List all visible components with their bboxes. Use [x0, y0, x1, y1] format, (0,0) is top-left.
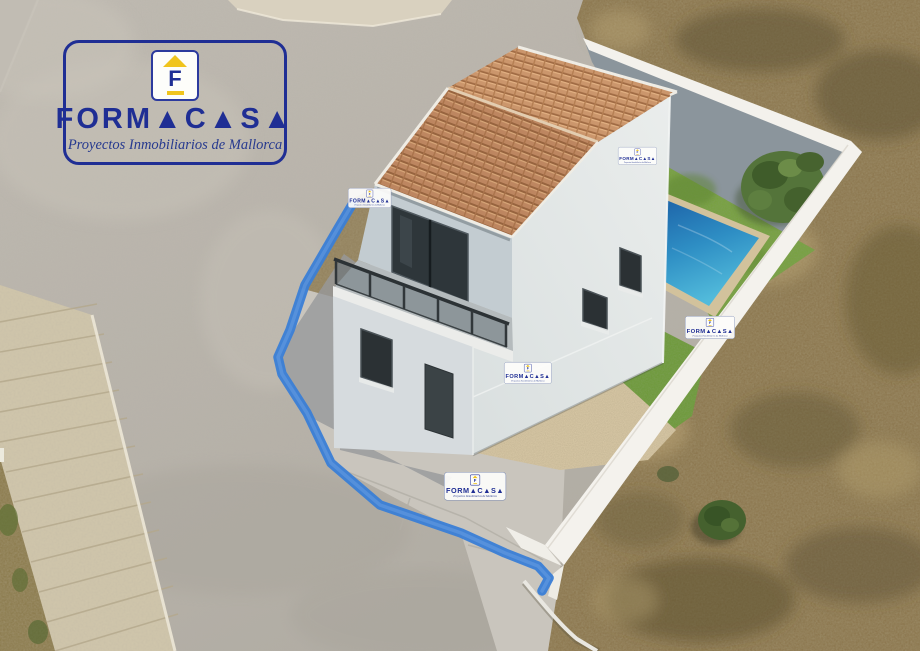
formacasa-house-icon: F [470, 475, 480, 486]
formacasa-watermark: F FORM▲C▲S▲ Proyectos Inmobiliarios de M… [504, 362, 552, 384]
scrub-patch [657, 466, 679, 482]
formacasa-logo: F FORM▲C▲S▲ Proyectos Inmobiliarios de M… [63, 40, 287, 165]
formacasa-watermark: F FORM▲C▲S▲ Proyectos Inmobiliarios de M… [618, 147, 657, 165]
front-door [425, 364, 453, 438]
watermark-brand: FORM▲C▲S▲ [687, 328, 734, 334]
formacasa-watermark: F FORM▲C▲S▲ Proyectos Inmobiliarios de M… [444, 472, 506, 501]
watermark-brand: FORM▲C▲S▲ [619, 156, 655, 161]
logo-underline [167, 91, 184, 95]
watermark-tagline: Proyectos Inmobiliarios de Mallorca [511, 380, 544, 383]
formacasa-house-icon: F [634, 149, 640, 156]
formacasa-watermark: F FORM▲C▲S▲ Proyectos Inmobiliarios de M… [348, 188, 391, 208]
formacasa-watermark: F FORM▲C▲S▲ Proyectos Inmobiliarios de M… [685, 316, 735, 339]
formacasa-house-icon: F [366, 190, 373, 198]
se-wall-window-2 [618, 248, 643, 298]
watermark-tagline: Proyectos Inmobiliarios de Mallorca [355, 204, 385, 206]
watermark-brand: FORM▲C▲S▲ [446, 487, 504, 495]
aerial-property-photo: F FORM▲C▲S▲ Proyectos Inmobiliarios de M… [0, 0, 920, 651]
formacasa-house-icon: F [706, 318, 714, 327]
watermark-tagline: Proyectos Inmobiliarios de Mallorca [624, 161, 651, 163]
logo-tagline: Proyectos Inmobiliarios de Mallorca [68, 137, 282, 153]
logo-card: F FORM▲C▲S▲ Proyectos Inmobiliarios de M… [63, 40, 287, 165]
watermark-brand: FORM▲C▲S▲ [349, 198, 390, 203]
ground-floor-window [359, 329, 394, 393]
watermark-brand: FORM▲C▲S▲ [506, 373, 551, 379]
watermark-tagline: Proyectos Inmobiliarios de Mallorca [453, 495, 496, 498]
watermark-tagline: Proyectos Inmobiliarios de Mallorca [693, 334, 728, 337]
formacasa-house-icon: F [524, 364, 532, 372]
formacasa-house-icon: F [151, 50, 199, 101]
logo-letter: F [168, 68, 181, 90]
logo-brand: FORM▲C▲S▲ [56, 104, 295, 134]
